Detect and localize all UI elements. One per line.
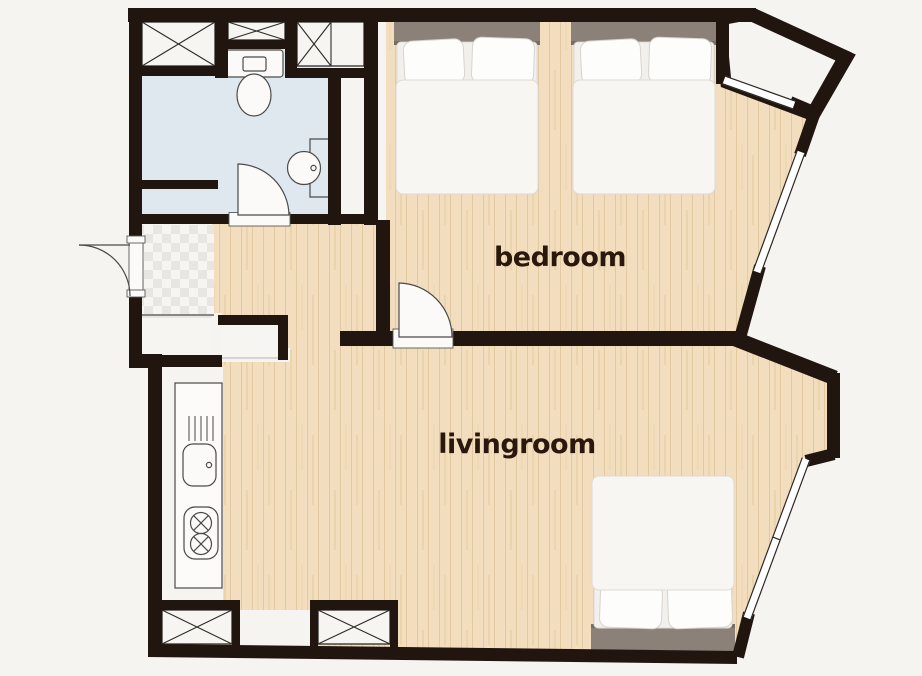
wall-hallcloset-top <box>218 315 288 325</box>
entrance-door <box>79 236 145 297</box>
wardrobe-top-middle <box>228 22 285 40</box>
wall-under-right-closet <box>288 68 378 78</box>
wall-under-left-closet <box>135 66 215 76</box>
wall-top <box>128 8 756 22</box>
wall-bottomcloset2-right <box>390 600 398 647</box>
wall-bottomcloset2-left <box>310 600 318 647</box>
bottom-recess <box>240 610 310 647</box>
floor-plan: bedroom livingroom <box>0 0 922 676</box>
livingroom-label: livingroom <box>438 429 595 460</box>
wall-bedroom-left-lower <box>376 220 390 346</box>
bedroom-label: bedroom <box>494 242 626 273</box>
entrance-door-swing-arc <box>79 245 130 296</box>
wardrobe-top-left <box>142 22 215 66</box>
bedroom-bed-2 <box>571 20 717 194</box>
wall-bottomcloset1-right <box>232 600 240 647</box>
wardrobe-bottom-left <box>162 610 232 644</box>
entry-tile-floor <box>142 225 214 315</box>
kitchen-counter <box>175 383 222 588</box>
wall-bottomcloset1-top <box>155 600 240 610</box>
wall-entrycloset-bottom <box>135 355 222 367</box>
wall-living-short <box>806 454 834 461</box>
bedroom-bed-1 <box>394 20 540 194</box>
wall-bathroom-inner <box>135 180 218 189</box>
wardrobe-bottom-middle <box>318 610 390 644</box>
wall-closet-div-2 <box>285 20 297 78</box>
shaft <box>341 78 364 215</box>
livingroom-bed <box>591 476 735 652</box>
wall-living-right <box>827 373 840 458</box>
wall-under-mid-closet <box>222 40 285 49</box>
wall-balcony-left <box>716 18 729 84</box>
wall-bedroom-left-upper <box>364 20 378 225</box>
wall-hallcloset-right <box>278 315 288 360</box>
wardrobe-top-right <box>297 22 364 66</box>
hall-closet <box>222 325 278 359</box>
wall-bottomcloset2-top <box>310 600 398 610</box>
entry-closet <box>136 317 213 357</box>
kitchen-sink <box>183 444 216 486</box>
wall-bathroom-right <box>328 68 341 225</box>
